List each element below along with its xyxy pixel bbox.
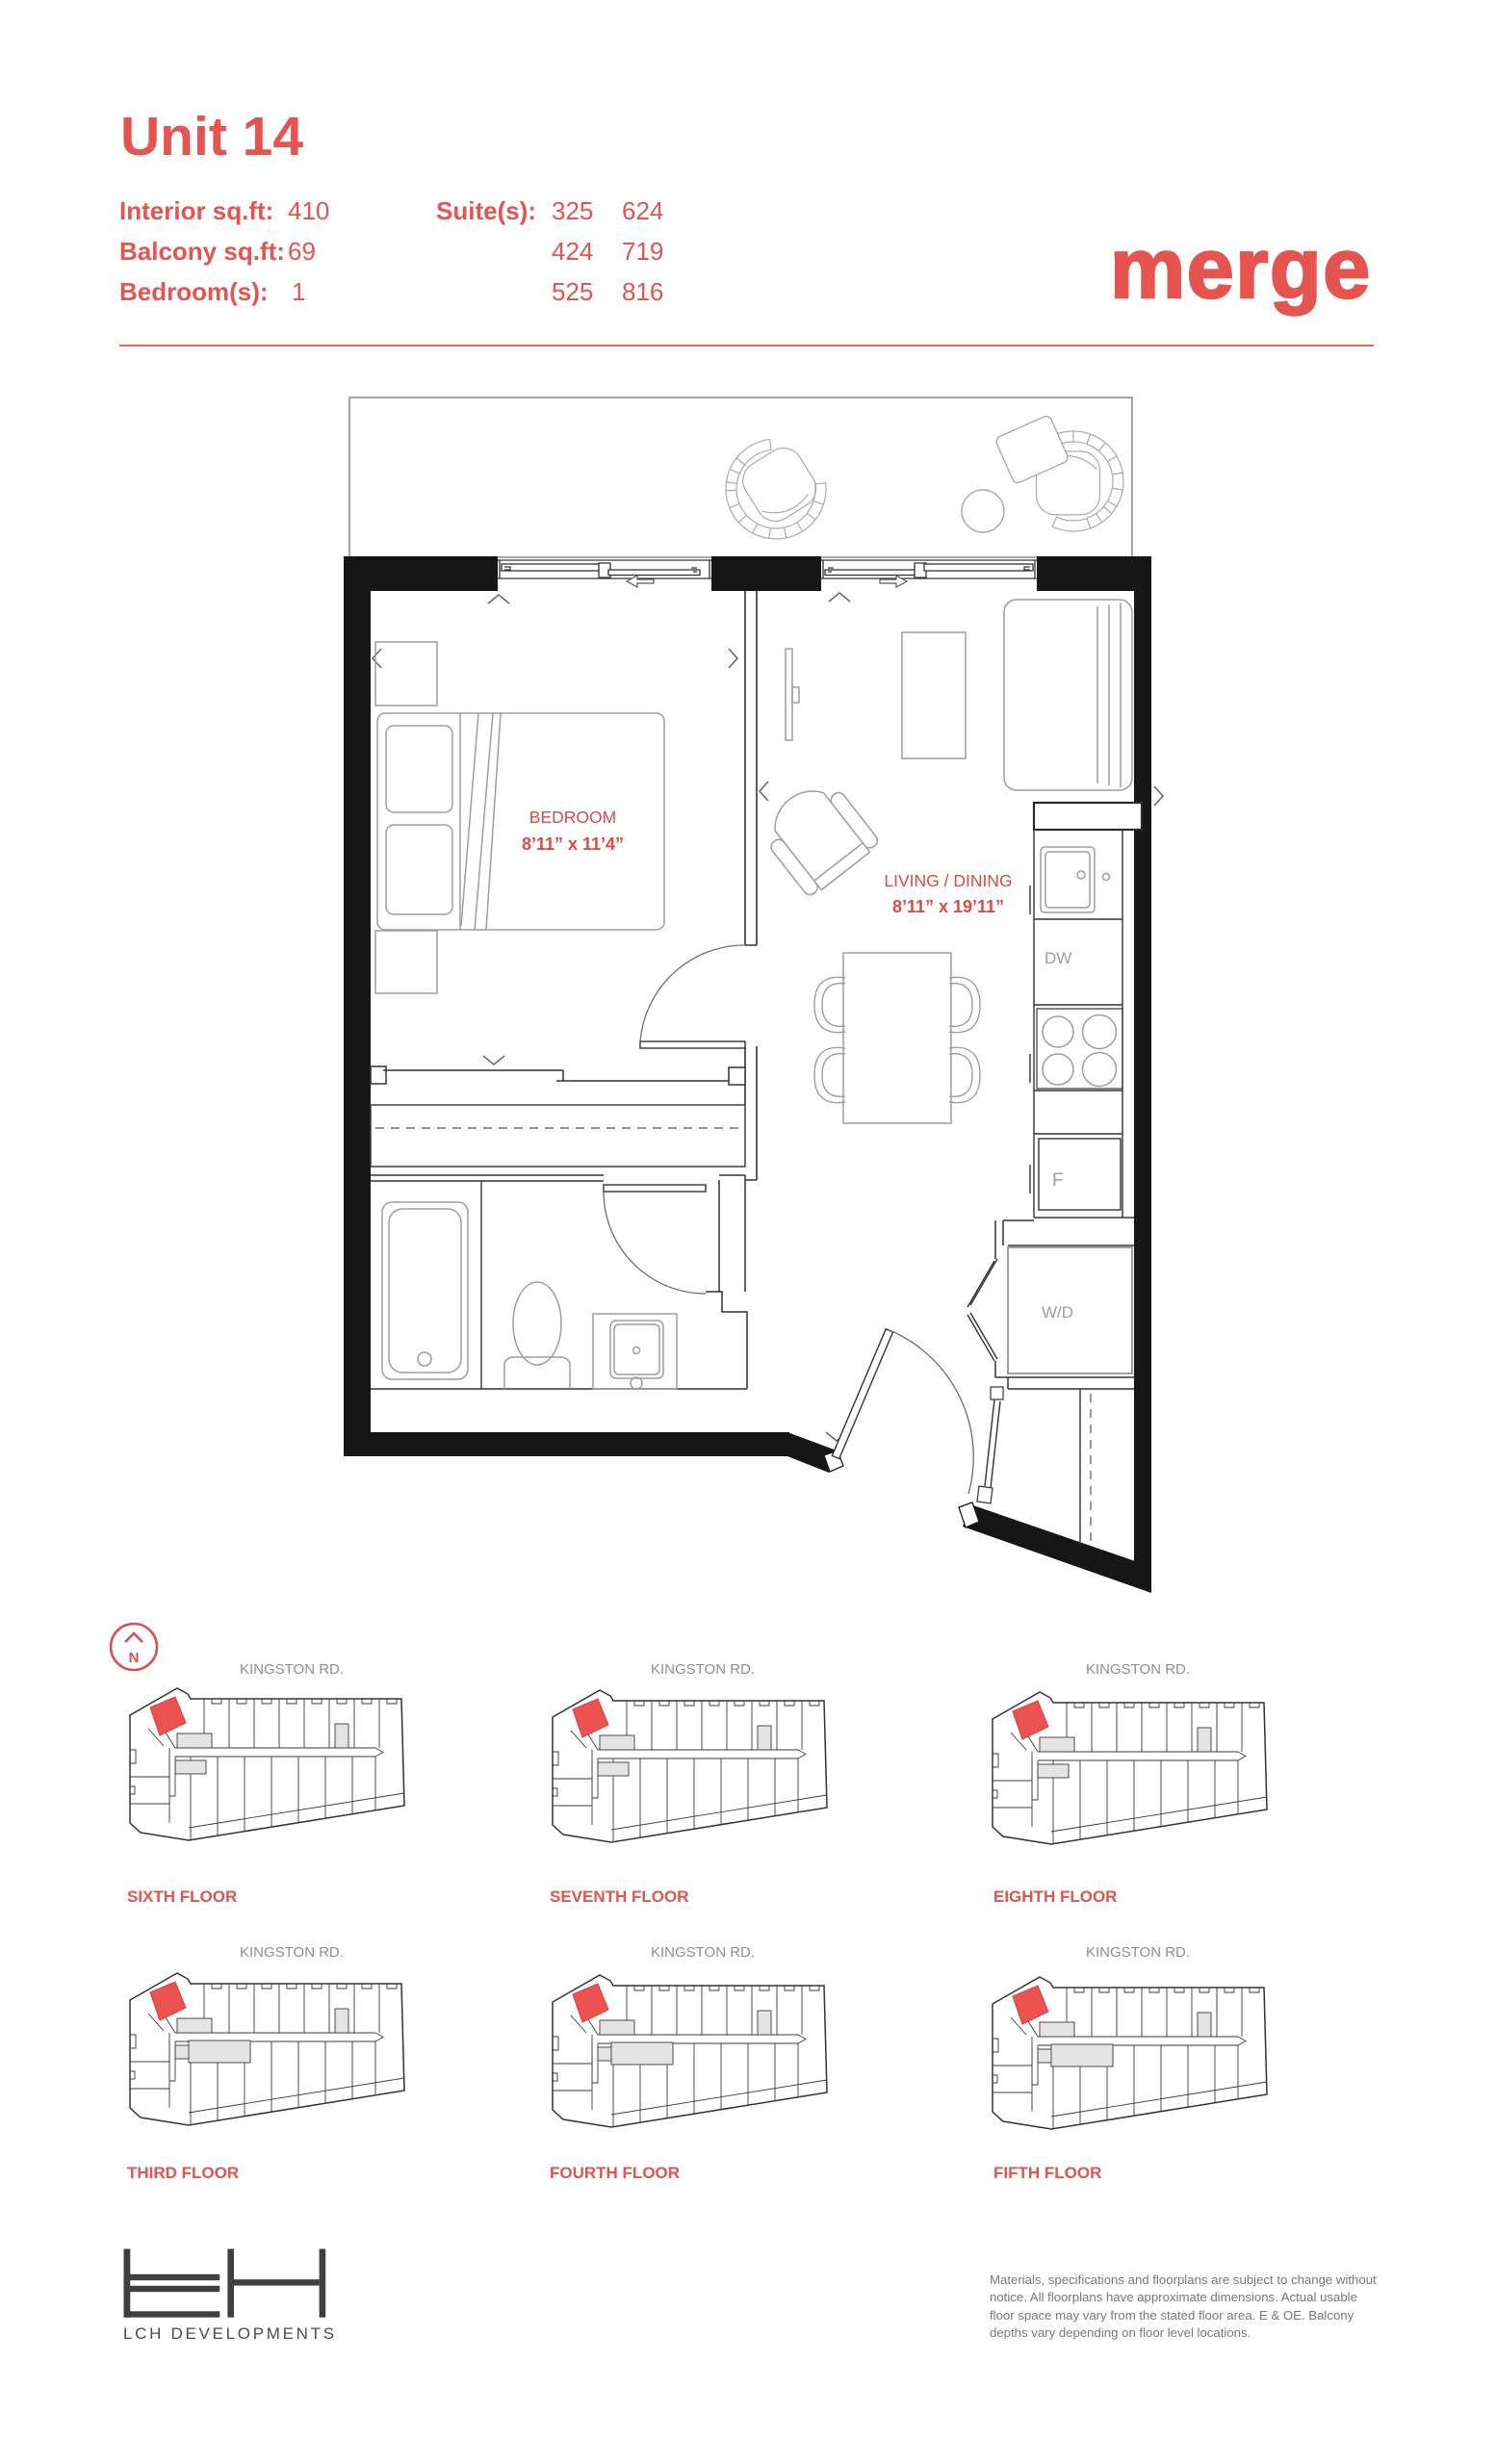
svg-text:525: 525 [552,277,593,306]
svg-text:8’11” x 19’11”: 8’11” x 19’11” [892,897,1004,916]
svg-text:Suite(s):: Suite(s): [436,196,536,225]
svg-text:SEVENTH FLOOR: SEVENTH FLOOR [550,1887,689,1906]
svg-text:410: 410 [288,196,329,225]
svg-text:W/D: W/D [1042,1303,1073,1322]
svg-text:KINGSTON RD.: KINGSTON RD. [1086,1944,1190,1961]
svg-text:N: N [129,1650,140,1666]
svg-text:DW: DW [1045,949,1071,967]
svg-text:KINGSTON RD.: KINGSTON RD. [651,1944,755,1961]
svg-text:KINGSTON RD.: KINGSTON RD. [240,1944,344,1961]
svg-text:KINGSTON RD.: KINGSTON RD. [240,1661,344,1678]
svg-text:merge: merge [1110,220,1372,316]
svg-text:69: 69 [288,237,316,266]
svg-text:325: 325 [552,196,593,225]
svg-text:FOURTH FLOOR: FOURTH FLOOR [550,2164,680,2182]
svg-text:SIXTH FLOOR: SIXTH FLOOR [127,1887,237,1906]
svg-text:FIFTH FLOOR: FIFTH FLOOR [993,2164,1101,2182]
svg-text:LIVING / DINING: LIVING / DINING [884,871,1012,890]
svg-text:8’11” x 11’4”: 8’11” x 11’4” [522,834,624,854]
svg-text:KINGSTON RD.: KINGSTON RD. [1086,1661,1190,1678]
svg-text:floor space may vary from the: floor space may vary from the stated flo… [990,2308,1354,2323]
svg-text:1: 1 [292,277,305,306]
svg-text:624: 624 [622,196,663,225]
svg-text:719: 719 [622,237,663,266]
svg-text:Balcony sq.ft:: Balcony sq.ft: [119,237,285,266]
svg-text:LCH DEVELOPMENTS: LCH DEVELOPMENTS [123,2324,337,2343]
svg-text:depths vary depending on floor: depths vary depending on floor level loc… [990,2325,1251,2340]
svg-text:Unit 14: Unit 14 [120,106,303,167]
svg-text:Bedroom(s):: Bedroom(s): [119,277,269,306]
svg-text:KINGSTON RD.: KINGSTON RD. [651,1661,755,1678]
svg-text:EIGHTH FLOOR: EIGHTH FLOOR [993,1887,1117,1906]
svg-text:Materials, specifications and: Materials, specifications and floorplans… [990,2272,1377,2287]
svg-text:424: 424 [552,237,593,266]
svg-text:Interior sq.ft:: Interior sq.ft: [119,196,273,225]
svg-text:816: 816 [622,277,663,306]
svg-text:THIRD FLOOR: THIRD FLOOR [127,2164,239,2182]
svg-text:notice. All floorplans have ap: notice. All floorplans have approximate … [990,2290,1357,2304]
svg-text:BEDROOM: BEDROOM [529,808,616,827]
svg-text:F: F [1052,1170,1064,1191]
